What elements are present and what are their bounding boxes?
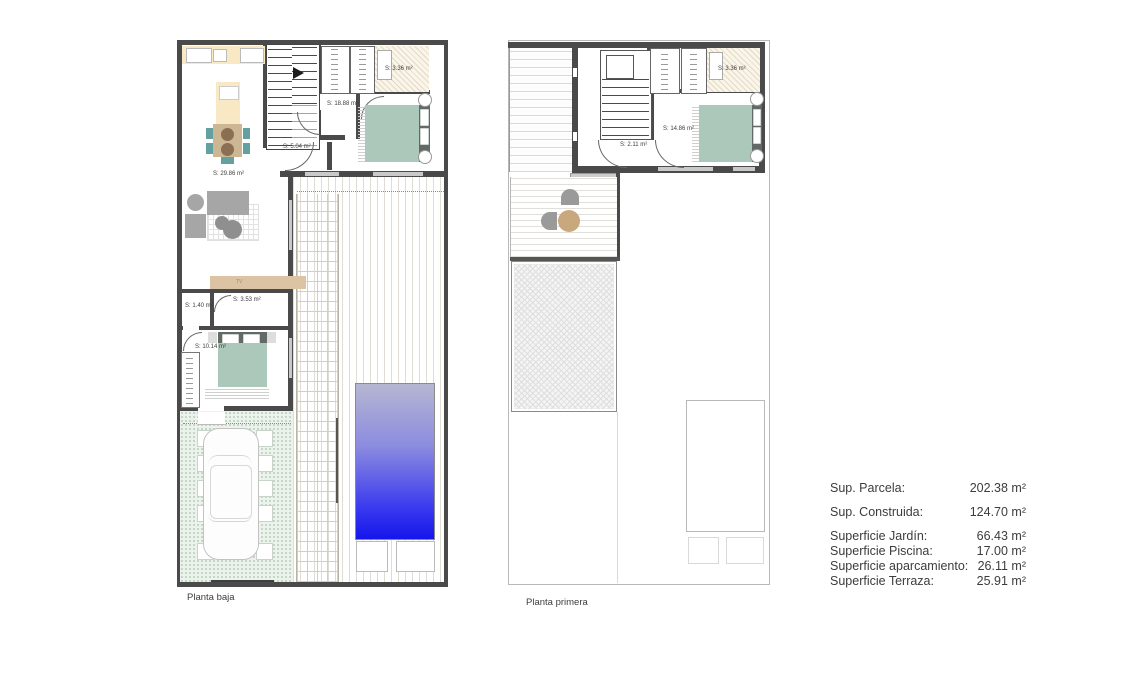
plan-title: Planta primera [526, 597, 588, 608]
summary-row: Sup. Construida: 124.70 m² [830, 505, 1026, 519]
closet-hangers [186, 356, 193, 404]
summary-value: 124.70 m² [970, 505, 1026, 519]
door-arc [214, 295, 231, 312]
island-hob [219, 86, 239, 100]
room-label: S: 1.40 m² [185, 303, 213, 309]
summary-row: Superficie Jardín: 66.43 m² [830, 529, 1026, 543]
shade-hatch [514, 264, 614, 409]
side-table [187, 194, 204, 211]
sofa [207, 191, 249, 215]
summary-value: 17.00 m² [977, 544, 1026, 558]
nightstand [208, 332, 217, 343]
door-gap [573, 68, 577, 77]
pillow [420, 109, 429, 126]
stair-landing [606, 55, 634, 79]
summary-label: Sup. Construida: [830, 505, 923, 519]
summary-label: Superficie Terraza: [830, 574, 934, 588]
summary-row: Superficie Terraza: 25.91 m² [830, 574, 1026, 588]
fixture [377, 50, 392, 80]
room-label: S: 3.53 m² [233, 297, 261, 303]
closet [650, 48, 680, 94]
summary-value: 202.38 m² [970, 481, 1026, 495]
summary-label: Superficie Piscina: [830, 544, 933, 558]
nightstand [267, 332, 276, 343]
bed [699, 105, 752, 162]
kitchen-sink [213, 49, 227, 62]
stairs [600, 50, 652, 140]
wall-segment [327, 142, 332, 170]
plan-title: Planta baja [187, 592, 235, 603]
room-label: S: 18.88 m² [327, 101, 358, 107]
room-label: S: 3.36 m² [385, 66, 413, 72]
pillow [420, 128, 429, 145]
pool-outline [686, 400, 765, 532]
sunbed [356, 541, 388, 572]
dining-chair [243, 143, 250, 154]
roof-area [509, 48, 573, 172]
dining-chair [206, 143, 213, 154]
floor-plan-first: S: 2.11 m² S: 14.86 m² S: 3.36 m² Planta… [508, 40, 770, 585]
terrace-chair [541, 212, 557, 230]
pool [355, 383, 435, 540]
wall-segment [177, 289, 293, 293]
deck-edge-line [617, 412, 618, 583]
wall-segment [444, 40, 448, 587]
place-setting [221, 143, 234, 156]
summary-value: 66.43 m² [977, 529, 1026, 543]
window [289, 200, 292, 250]
pillow [753, 109, 761, 126]
wardrobe [181, 352, 200, 408]
summary-row: Superficie aparcamiento: 26.11 m² [830, 559, 1026, 573]
bed-rug [358, 105, 365, 162]
terrace-table [558, 210, 580, 232]
wall-segment [572, 48, 578, 172]
coffee-table [223, 220, 242, 239]
pillow [753, 127, 761, 144]
bed-rug [692, 105, 699, 162]
tv-console: TV [210, 276, 306, 289]
window [658, 167, 713, 171]
stair-direction-arrow [293, 67, 304, 79]
wall-segment [177, 411, 180, 587]
nightstand [750, 149, 764, 163]
closet [321, 46, 350, 94]
car-rear [208, 503, 252, 522]
terrace-chair [561, 189, 579, 205]
sunbed-outline [726, 537, 764, 564]
nightstand [418, 93, 432, 107]
wall-segment [177, 582, 448, 587]
wall-segment [317, 135, 345, 140]
summary-value: 25.91 m² [977, 574, 1026, 588]
nightstand [750, 92, 764, 106]
stairs [266, 44, 320, 150]
room-label: S: 29.86 m² [213, 171, 244, 177]
kitchen-appliance [240, 48, 264, 63]
kitchen-appliance [186, 48, 212, 63]
stair-treads [602, 79, 649, 136]
sofa-chaise [185, 214, 206, 238]
summary-row: Sup. Parcela: 202.38 m² [830, 481, 1026, 495]
closet [350, 46, 375, 94]
closet-hangers [331, 49, 338, 90]
entry-step [198, 412, 225, 425]
summary-label: Superficie aparcamiento: [830, 559, 968, 573]
surface-summary: Sup. Parcela: 202.38 m² Sup. Construida:… [830, 481, 1026, 589]
summary-row: Superficie Piscina: 17.00 m² [830, 544, 1026, 558]
closet-hangers [690, 51, 697, 90]
sunbed-outline [688, 537, 719, 564]
dining-chair [221, 157, 234, 164]
summary-label: Superficie Jardín: [830, 529, 927, 543]
dining-chair [243, 128, 250, 139]
window [733, 167, 755, 171]
bed [365, 105, 419, 162]
place-setting [221, 128, 234, 141]
closet-hangers [359, 49, 366, 90]
closet [681, 48, 707, 94]
room-label: S: 2.11 m² [620, 142, 647, 148]
window [289, 338, 292, 378]
window [305, 172, 339, 176]
fence-line [336, 418, 338, 503]
stair-treads [268, 46, 292, 146]
window [373, 172, 423, 176]
car [203, 428, 259, 560]
room-label: S: 3.36 m² [718, 66, 746, 72]
summary-label: Sup. Parcela: [830, 481, 905, 495]
nightstand [418, 150, 432, 164]
floor-plan-ground: TV S: 29.86 m² S: 18.88 m² S: 5.04 m² S:… [177, 40, 448, 587]
door-gap [183, 326, 199, 330]
summary-value: 26.11 m² [978, 559, 1026, 573]
door-gap [198, 406, 224, 411]
closet-hangers [661, 51, 668, 90]
boundary-dotted-line [297, 191, 444, 192]
bed-rug [205, 387, 269, 399]
dining-chair [206, 128, 213, 139]
shade-structure [511, 261, 617, 412]
room-label: S: 14.86 m² [663, 126, 694, 132]
room-label: S: 10.14 m² [195, 344, 226, 350]
door-gap [573, 132, 577, 141]
sunbed [396, 541, 435, 572]
room-label: S: 5.04 m² [283, 144, 311, 150]
pergola-grid [296, 194, 339, 582]
